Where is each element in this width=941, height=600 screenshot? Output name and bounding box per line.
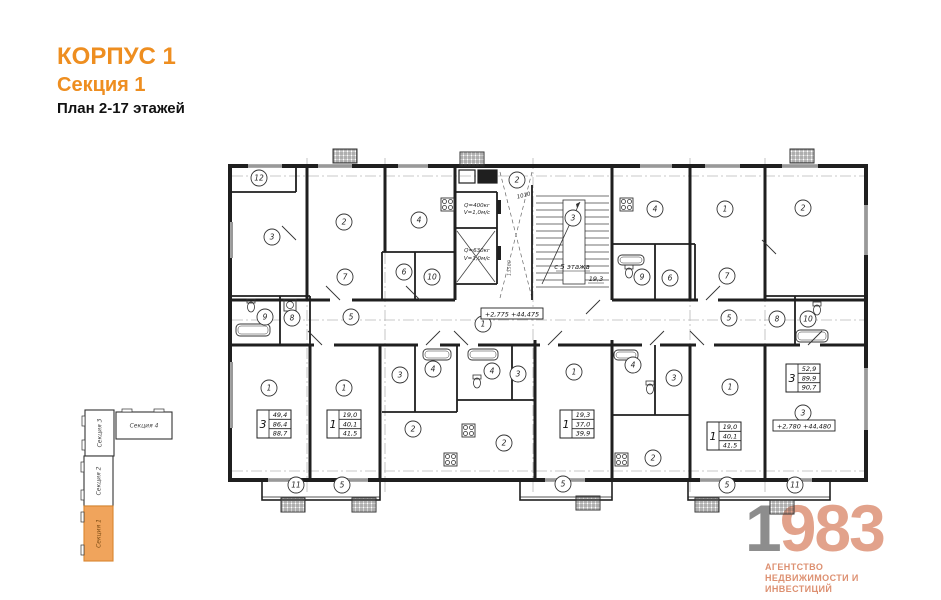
svg-text:1: 1: [723, 205, 728, 214]
apartment-area-table: 119,040,141,5: [327, 410, 361, 438]
dim-1010: 1010: [516, 191, 532, 200]
toilet-icon: [625, 265, 633, 278]
svg-text:4: 4: [653, 205, 658, 214]
svg-text:7: 7: [725, 272, 730, 281]
room-number-marker: 2: [336, 214, 352, 230]
room-number-marker: 4: [411, 212, 427, 228]
svg-text:2: 2: [515, 176, 520, 185]
svg-text:19,3: 19,3: [576, 411, 590, 419]
svg-text:5: 5: [727, 314, 732, 323]
toilet-icon: [813, 302, 821, 315]
room-number-marker: 12: [251, 170, 267, 186]
room-number-marker: 1: [722, 379, 738, 395]
svg-text:Секция 1: Секция 1: [96, 519, 103, 548]
bathtub-icon: [468, 349, 498, 360]
room-number-marker: 4: [425, 361, 441, 377]
vent-shaft-icon: [333, 149, 357, 163]
room-number-marker: 9: [257, 309, 273, 325]
room-number-marker: 7: [337, 269, 353, 285]
room-number-marker: 9: [634, 269, 650, 285]
elevation-mark: +2,775 +44,475: [481, 308, 543, 319]
svg-text:1: 1: [481, 320, 486, 329]
svg-text:9: 9: [263, 313, 268, 322]
svg-text:9: 9: [640, 273, 645, 282]
room-number-marker: 8: [284, 310, 300, 326]
room-number-marker: 5: [334, 477, 350, 493]
svg-text:12: 12: [254, 174, 264, 183]
svg-text:6: 6: [668, 274, 673, 283]
svg-text:3: 3: [571, 214, 576, 223]
vent-shaft-icon: [790, 149, 814, 163]
svg-text:+2,775 +44,475: +2,775 +44,475: [485, 311, 539, 319]
vent-shaft-icon: [281, 498, 305, 512]
vent-shaft-icon: [352, 498, 376, 512]
elevator1-label-line2: V=1,0м/с: [464, 210, 490, 216]
svg-text:10: 10: [803, 315, 813, 324]
svg-text:8: 8: [775, 315, 780, 324]
partition-walls: [307, 166, 765, 480]
room-number-marker: 1: [336, 380, 352, 396]
svg-text:39,9: 39,9: [576, 430, 590, 438]
room-number-marker: 3: [392, 367, 408, 383]
bathtub-icon: [796, 330, 828, 342]
svg-text:88,7: 88,7: [273, 430, 288, 438]
room-number-marker: 2: [509, 172, 525, 188]
room-number-marker: 2: [405, 421, 421, 437]
room-number-marker: 2: [645, 450, 661, 466]
svg-text:4: 4: [431, 365, 436, 374]
svg-text:3: 3: [789, 372, 796, 385]
svg-text:11: 11: [790, 481, 800, 490]
svg-text:1: 1: [342, 384, 347, 393]
apartment-area-table: 119,040,141,5: [707, 422, 741, 450]
toilet-icon: [473, 375, 481, 388]
svg-text:4: 4: [417, 216, 422, 225]
svg-text:3: 3: [260, 418, 267, 431]
room-number-marker: 11: [787, 477, 803, 493]
vent-shaft-icon: [460, 152, 484, 166]
svg-text:41,5: 41,5: [723, 442, 737, 450]
room-number-marker: 7: [719, 268, 735, 284]
svg-text:1: 1: [710, 430, 717, 443]
svg-text:5: 5: [725, 481, 730, 490]
svg-text:3: 3: [801, 409, 806, 418]
elevator2-label-line1: Q=630кг: [464, 248, 490, 254]
room-number-marker: 1: [261, 380, 277, 396]
vent-shafts: [281, 149, 814, 514]
bathtub-icon: [423, 349, 451, 360]
room-number-marker: 11: [288, 477, 304, 493]
svg-text:4: 4: [631, 361, 636, 370]
room-number-marker: 1: [566, 364, 582, 380]
stair-from-label: с 5 этажа: [554, 263, 590, 271]
room-number-marker: 5: [343, 309, 359, 325]
floor-plan: 1232476109852341296758101113443122432131…: [0, 0, 941, 600]
svg-text:3: 3: [270, 233, 275, 242]
minimap-section-4[interactable]: Секция 4: [116, 409, 172, 439]
elevator1-label-line1: Q=400кг: [464, 203, 490, 209]
room-number-marker: 3: [264, 229, 280, 245]
room-number-marker: 8: [769, 311, 785, 327]
svg-text:2: 2: [801, 204, 806, 213]
svg-text:19,0: 19,0: [343, 411, 357, 419]
svg-text:1: 1: [563, 418, 570, 431]
vent-shaft-icon: [576, 496, 600, 510]
shaft-dashed-cross: [500, 172, 532, 298]
apartment-area-tables: 349,486,488,7119,040,141,5119,337,039,91…: [257, 364, 820, 450]
building-minimap: Секция 4Секция 3Секция 2Секция 1: [81, 409, 172, 561]
svg-text:1: 1: [267, 384, 272, 393]
room-number-marker: 3: [795, 405, 811, 421]
svg-text:Секция 3: Секция 3: [97, 418, 104, 447]
svg-text:Секция 4: Секция 4: [130, 423, 159, 430]
svg-text:+2,780 +44,480: +2,780 +44,480: [777, 423, 831, 431]
minimap-section-3[interactable]: Секция 3: [82, 410, 114, 456]
room-number-marker: 10: [800, 311, 816, 327]
inner-walls: [230, 166, 866, 415]
svg-text:Секция 2: Секция 2: [96, 466, 103, 495]
svg-text:2: 2: [502, 439, 507, 448]
elevator2-label-line2: V=1,0м/с: [464, 256, 490, 262]
room-number-marker: 6: [396, 264, 412, 280]
apartment-area-table: 349,486,488,7: [257, 410, 291, 438]
room-number-marker: 3: [565, 210, 581, 226]
svg-text:89,9: 89,9: [802, 374, 816, 382]
apartment-area-table: 119,337,039,9: [560, 410, 594, 438]
svg-text:5: 5: [340, 481, 345, 490]
svg-text:4: 4: [490, 367, 495, 376]
svg-text:40,1: 40,1: [343, 420, 357, 428]
svg-text:37,0: 37,0: [576, 420, 590, 428]
svg-text:6: 6: [402, 268, 407, 277]
svg-text:7: 7: [343, 273, 348, 282]
room-number-marker: 2: [496, 435, 512, 451]
vent-shaft-icon: [770, 500, 794, 514]
elevation-mark: +2,780 +44,480: [773, 420, 835, 431]
apartment-area-table: 352,989,990,7: [786, 364, 820, 392]
svg-text:2: 2: [342, 218, 347, 227]
room-number-marker: 2: [795, 200, 811, 216]
svg-text:10: 10: [427, 273, 437, 282]
svg-text:2: 2: [411, 425, 416, 434]
room-number-marker: 3: [666, 370, 682, 386]
room-number-marker: 6: [662, 270, 678, 286]
room-number-marker: 1: [717, 201, 733, 217]
room-number-marker: 5: [719, 477, 735, 493]
svg-text:1: 1: [572, 368, 577, 377]
svg-text:3: 3: [398, 371, 403, 380]
svg-text:90,7: 90,7: [802, 384, 817, 392]
dim-13560: 13560: [507, 260, 513, 276]
vent-shaft-icon: [695, 498, 719, 512]
stair-area-label: 19,3: [589, 275, 603, 283]
svg-text:1: 1: [728, 383, 733, 392]
room-number-marker: 4: [647, 201, 663, 217]
room-number-marker: 5: [555, 476, 571, 492]
room-number-marker: 5: [721, 310, 737, 326]
svg-text:2: 2: [651, 454, 656, 463]
svg-text:11: 11: [291, 481, 301, 490]
door-leaves: [282, 226, 822, 345]
svg-text:3: 3: [516, 370, 521, 379]
bathtub-icon: [236, 324, 270, 336]
svg-text:41,5: 41,5: [343, 430, 357, 438]
svg-text:8: 8: [290, 314, 295, 323]
svg-text:5: 5: [349, 313, 354, 322]
bathtub-icon: [618, 255, 644, 265]
svg-text:19,0: 19,0: [723, 423, 737, 431]
svg-text:3: 3: [672, 374, 677, 383]
room-number-marker: 4: [625, 357, 641, 373]
svg-text:52,9: 52,9: [802, 365, 816, 373]
svg-text:5: 5: [561, 480, 566, 489]
room-number-marker: 10: [424, 269, 440, 285]
svg-text:1: 1: [330, 418, 337, 431]
toilet-icon: [646, 381, 654, 394]
svg-text:40,1: 40,1: [723, 432, 737, 440]
room-number-marker: 3: [510, 366, 526, 382]
room-number-marker: 4: [484, 363, 500, 379]
svg-text:86,4: 86,4: [273, 420, 287, 428]
axis-lines: [232, 158, 866, 492]
minimap-section-2[interactable]: Секция 2: [81, 456, 113, 506]
svg-text:49,4: 49,4: [273, 411, 287, 419]
minimap-section-1[interactable]: Секция 1: [81, 506, 113, 561]
